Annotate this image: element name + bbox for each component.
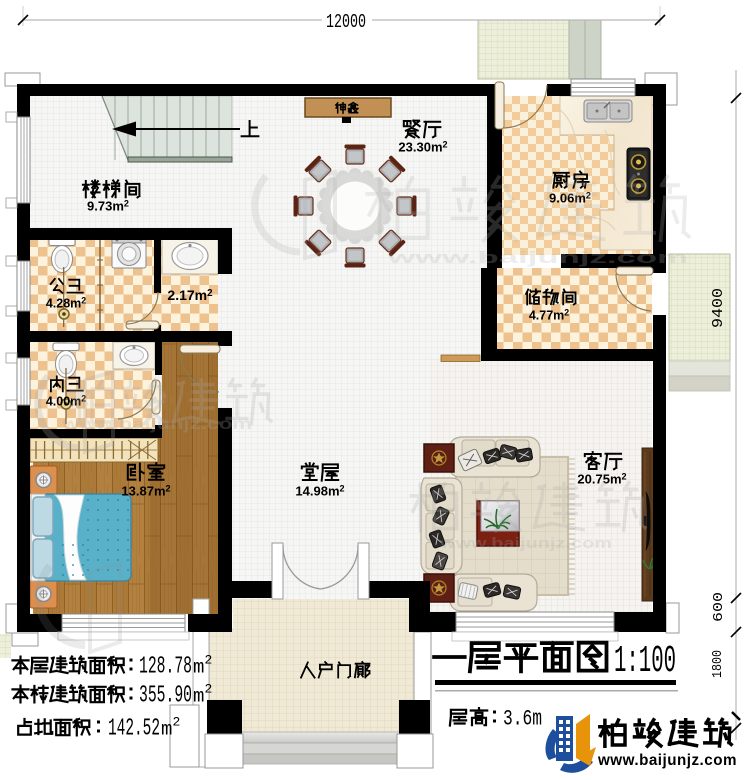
svg-text:www.baijunjz.com: www.baijunjz.com [61, 416, 252, 433]
svg-text:9400: 9400 [710, 288, 727, 328]
svg-text:2: 2 [173, 715, 181, 730]
svg-text:4.28m2: 4.28m2 [46, 296, 86, 311]
svg-text:13.87m2: 13.87m2 [121, 484, 170, 499]
svg-text:128.78: 128.78 [139, 654, 192, 681]
svg-text:1800: 1800 [710, 650, 726, 678]
svg-text:23.30m2: 23.30m2 [398, 140, 447, 155]
svg-text:m: m [161, 719, 172, 741]
svg-text:4.77m2: 4.77m2 [529, 308, 569, 323]
svg-text:2.17m2: 2.17m2 [167, 287, 213, 303]
svg-text:www.baijunjz.com: www.baijunjz.com [439, 535, 612, 552]
svg-text:m: m [193, 686, 204, 708]
svg-text:1:100: 1:100 [614, 640, 676, 683]
svg-text:3.6m: 3.6m [503, 707, 542, 732]
svg-text:m: m [193, 657, 204, 679]
svg-text:142.52: 142.52 [108, 716, 160, 743]
svg-text:355.90: 355.90 [139, 683, 192, 710]
svg-text:14.98m2: 14.98m2 [295, 484, 344, 499]
svg-text:9.73m2: 9.73m2 [87, 199, 129, 214]
svg-text:12000: 12000 [326, 11, 366, 33]
svg-text:www.baijunjz.com: www.baijunjz.com [386, 248, 688, 267]
svg-text:www.baijunjz.com: www.baijunjz.com [597, 752, 737, 769]
svg-text:2: 2 [205, 682, 213, 697]
svg-text:2: 2 [205, 653, 213, 668]
svg-text:600: 600 [711, 592, 727, 622]
